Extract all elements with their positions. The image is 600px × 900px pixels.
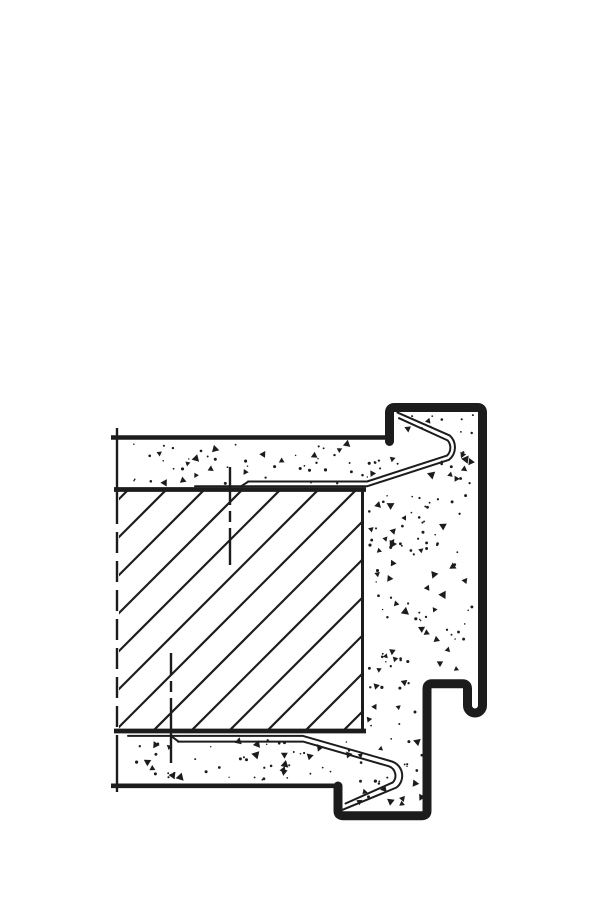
steel-frame-section-detail-drawing	[0, 0, 600, 900]
sheet-metal-anchor-profile-top	[195, 413, 455, 487]
drawing-page	[0, 0, 600, 900]
masonry-hatch-pattern	[0, 478, 596, 739]
wall-boundary-lines	[111, 438, 386, 786]
